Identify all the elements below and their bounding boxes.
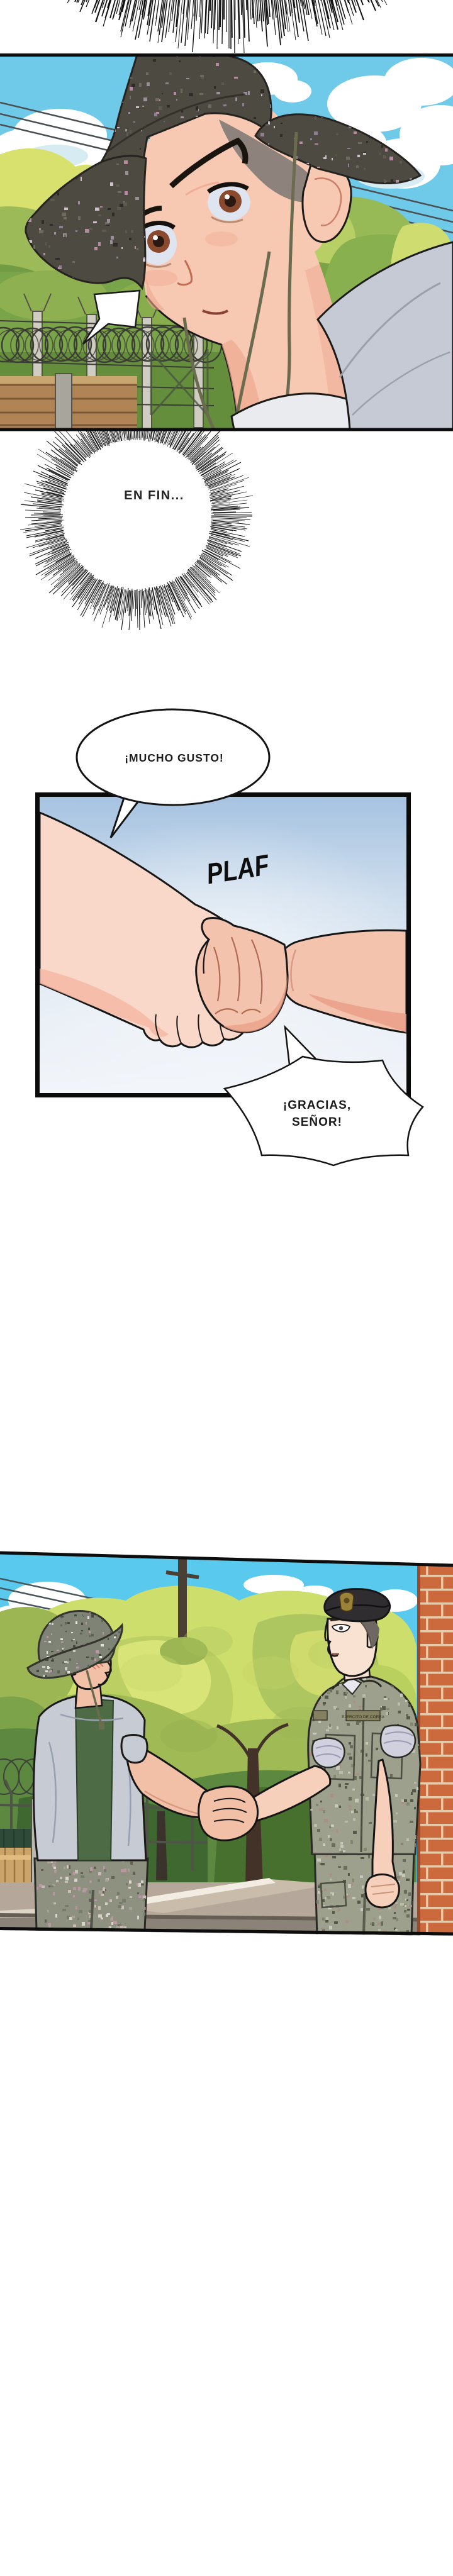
svg-text:¡GRACIAS,: ¡GRACIAS, [283,1099,351,1112]
svg-text:SEÑOR!: SEÑOR! [292,1115,342,1129]
svg-text:EJERCITO DE COREA: EJERCITO DE COREA [342,1715,384,1719]
svg-text:¡MUCHO GUSTO!: ¡MUCHO GUSTO! [125,752,224,764]
svg-text:EN FIN...: EN FIN... [124,489,184,502]
